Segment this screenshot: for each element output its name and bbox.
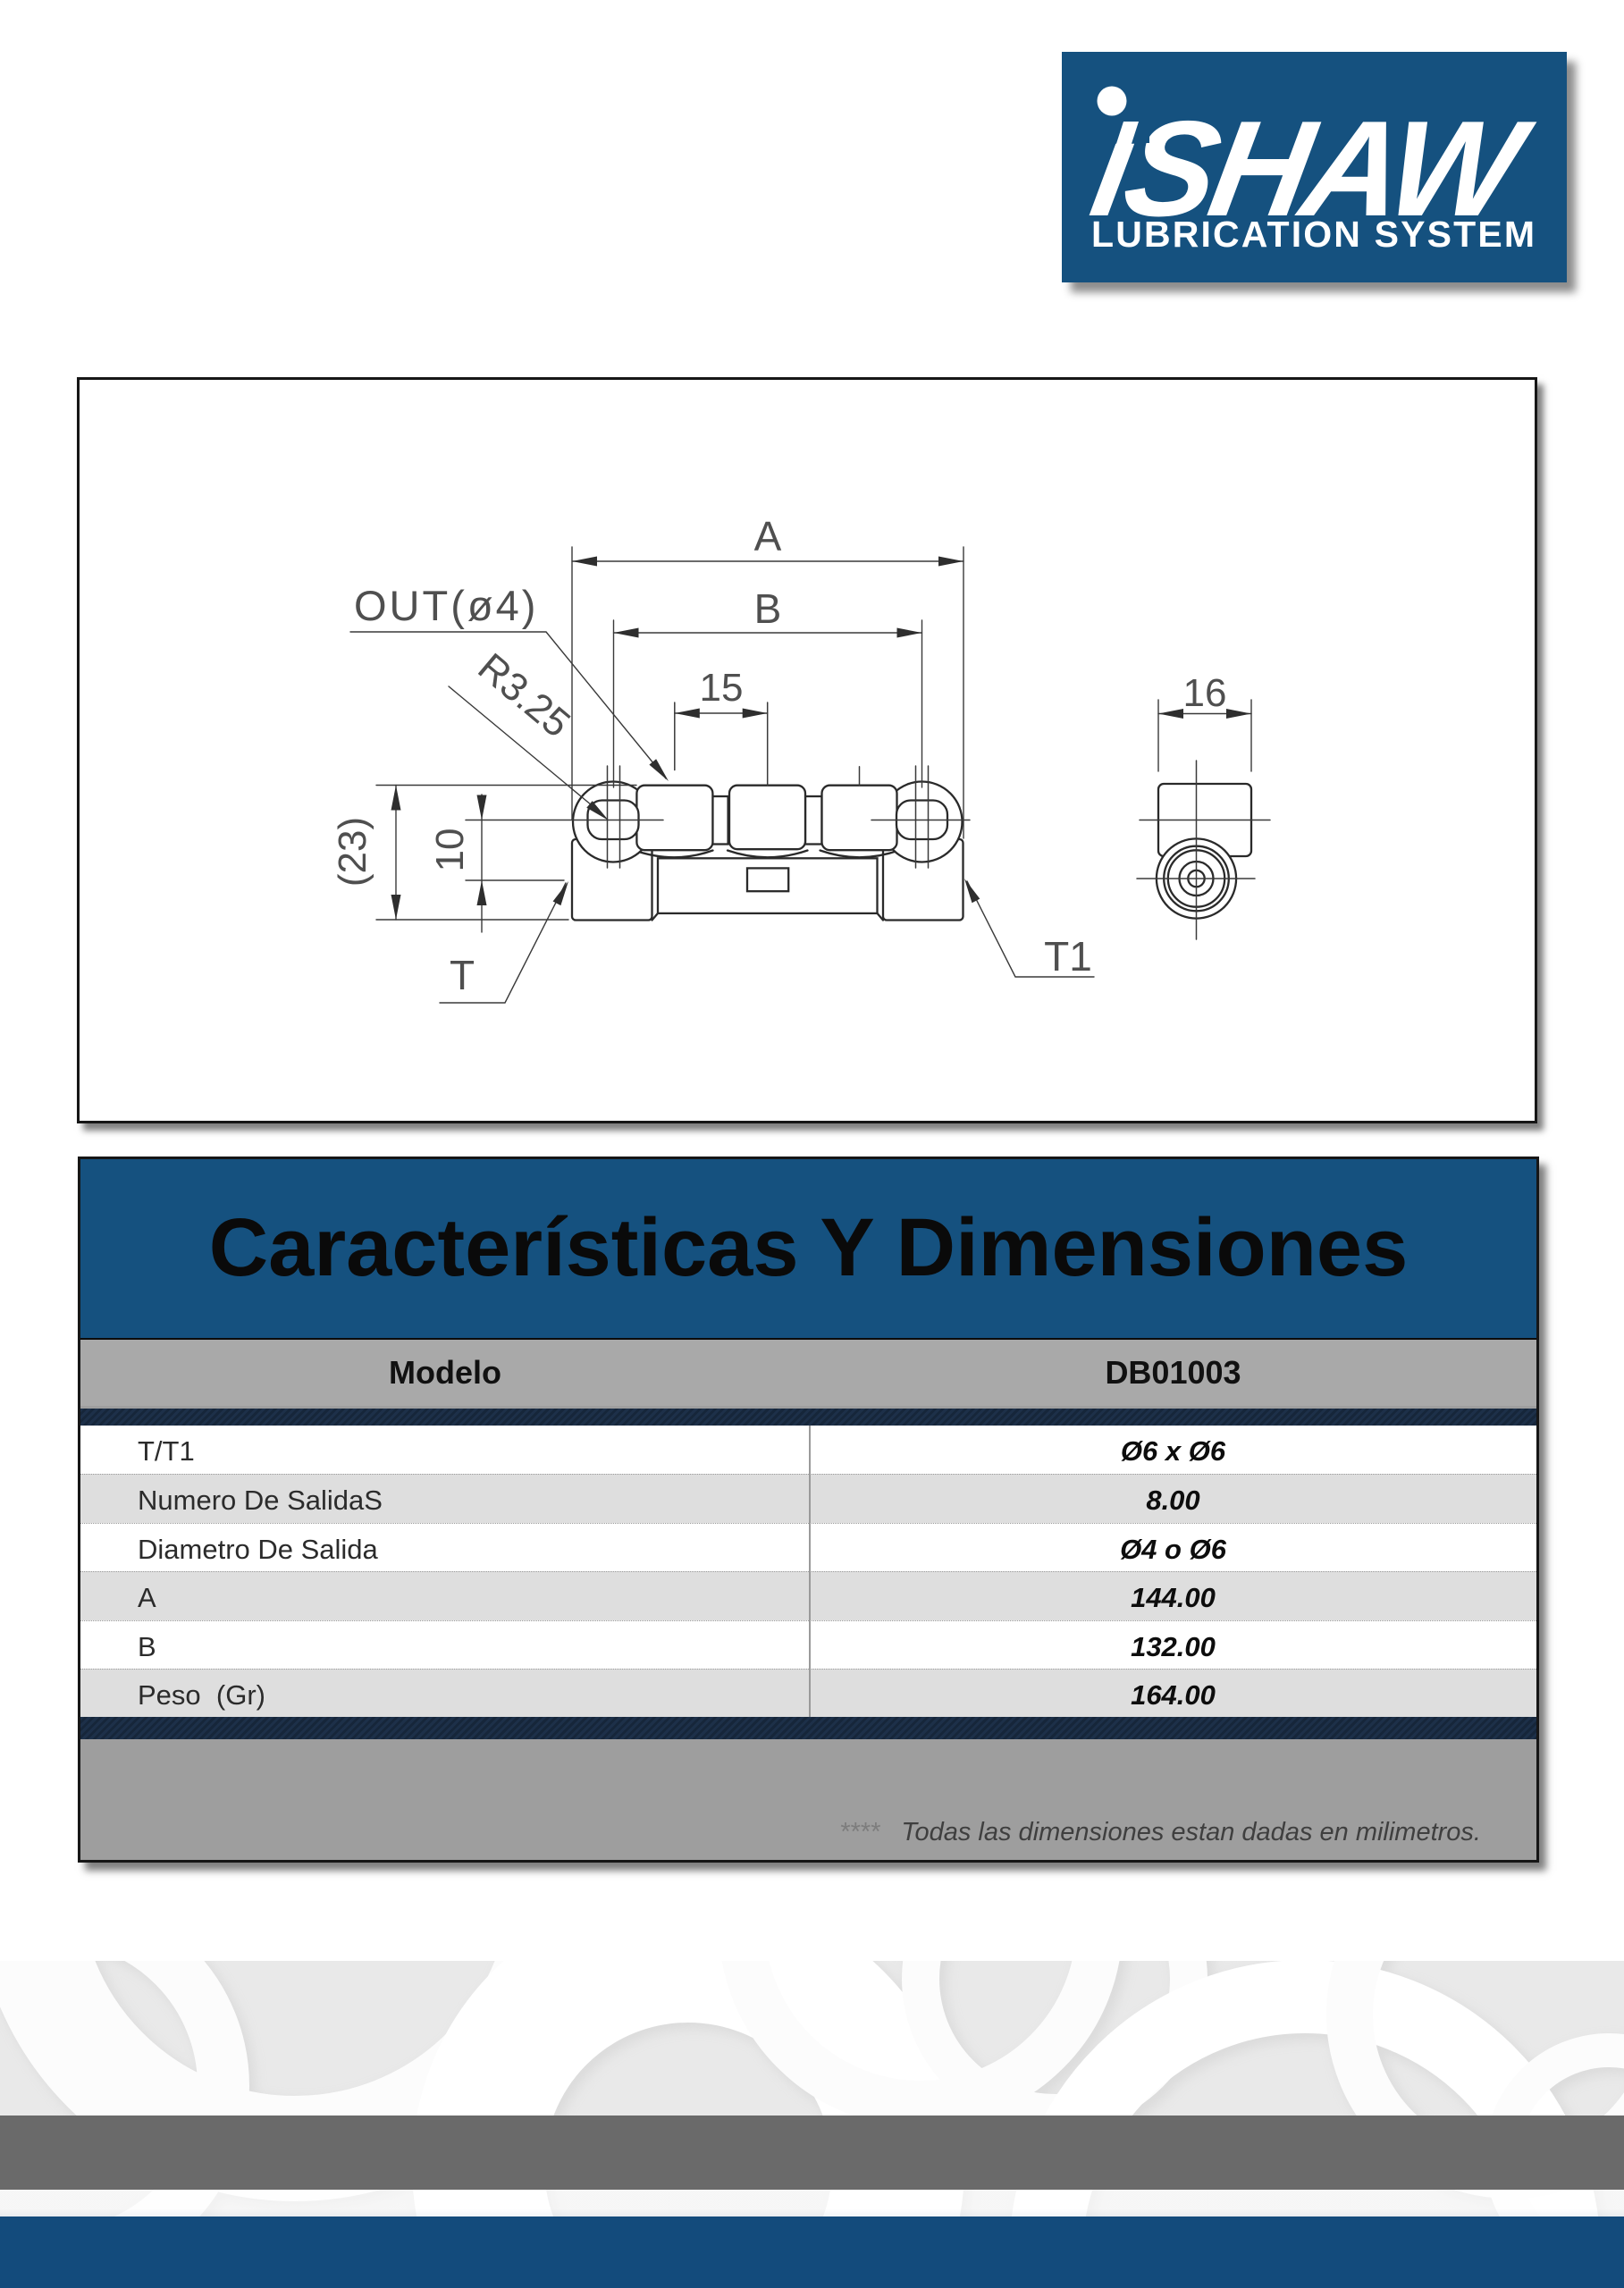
svg-text:10: 10 [428,829,472,872]
svg-text:T: T [450,952,475,998]
svg-text:(23): (23) [331,817,374,887]
svg-text:16: 16 [1183,671,1227,715]
svg-text:R3.25: R3.25 [470,645,578,746]
svg-text:A: A [754,513,782,559]
svg-text:OUT(ø4): OUT(ø4) [354,582,538,629]
svg-text:15: 15 [700,666,744,710]
svg-text:LUBRICATION SYSTEM: LUBRICATION SYSTEM [1091,214,1535,255]
svg-text:T1: T1 [1044,933,1092,980]
svg-text:B: B [754,585,782,632]
